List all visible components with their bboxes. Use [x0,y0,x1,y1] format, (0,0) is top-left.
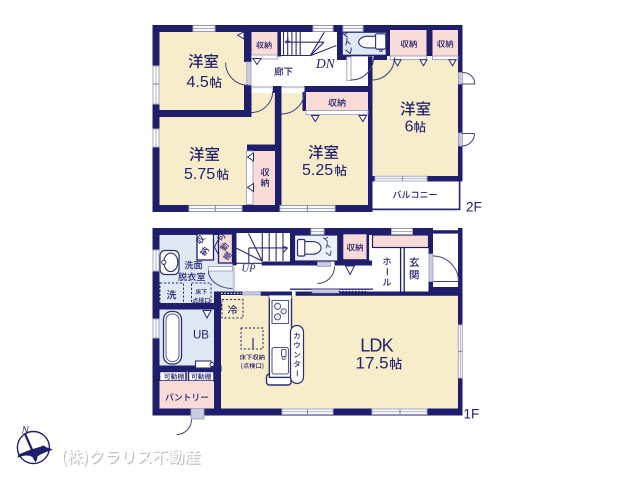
svg-text:UB: UB [193,330,209,342]
svg-text:1F: 1F [464,407,480,422]
svg-text:UP: UP [242,263,257,274]
svg-text:6: 6 [405,119,414,136]
svg-text:2F: 2F [466,200,482,215]
svg-text:5.25: 5.25 [302,162,333,179]
svg-text:DN: DN [315,56,336,71]
svg-text:4.5: 4.5 [187,74,209,91]
svg-text:5.75: 5.75 [184,166,215,183]
svg-text:17.5: 17.5 [356,354,389,373]
svg-text:LDK: LDK [360,336,393,356]
